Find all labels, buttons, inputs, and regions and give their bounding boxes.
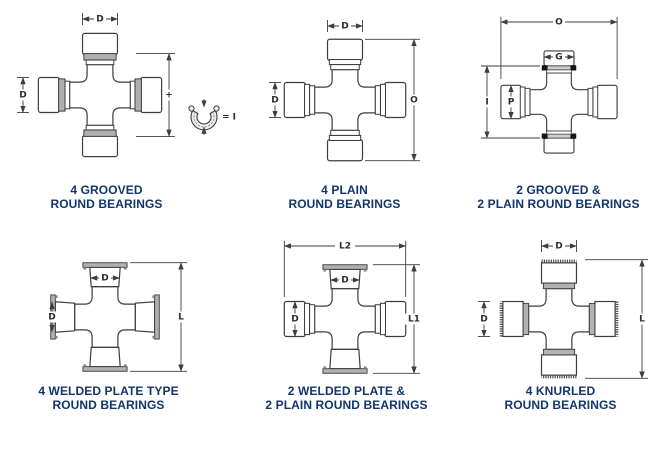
dim-label-length: L bbox=[639, 315, 645, 325]
caption-line-1: 2 GROOVED & bbox=[447, 184, 670, 198]
dim-label-left: D bbox=[48, 313, 55, 323]
ujoint-cross-plain bbox=[284, 39, 405, 160]
caption-line-2: ROUND BEARINGS bbox=[233, 198, 456, 212]
caption-line-2: ROUND BEARINGS bbox=[449, 399, 670, 413]
caption-line-1: 2 WELDED PLATE & bbox=[235, 385, 458, 399]
snap-ring-icon bbox=[189, 99, 219, 135]
cell-4-grooved: D D + = I 4 GROOVED ROUND BEARING bbox=[0, 0, 258, 225]
dim-label-overall-width: L2 bbox=[339, 242, 351, 252]
dim-label-top: D bbox=[555, 242, 562, 252]
ujoint-bearing-types-sheet: D D + = I 4 GROOVED ROUND BEARING bbox=[0, 0, 670, 450]
diagram-2-grooved-2-plain: O G I P bbox=[447, 0, 670, 183]
caption-line-2: 2 PLAIN ROUND BEARINGS bbox=[447, 198, 670, 212]
ujoint-cross-knurled bbox=[502, 262, 617, 377]
dim-label-left: D bbox=[480, 315, 487, 325]
cell-2-grooved-2-plain: O G I P 2 GROOVED & 2 PLAIN ROUND BEARIN… bbox=[447, 0, 670, 225]
dim-label-overall-height: O bbox=[410, 96, 418, 106]
dim-label-cap-bore: P bbox=[508, 98, 515, 108]
dim-label-left: D bbox=[291, 315, 298, 325]
diagram-caption: 4 KNURLED ROUND BEARINGS bbox=[449, 385, 670, 412]
diagram-caption: 4 GROOVED ROUND BEARINGS bbox=[0, 184, 218, 211]
diagram-4-welded-plate: D D L bbox=[0, 225, 223, 383]
diagram-4-grooved: D D + = I bbox=[0, 0, 258, 183]
dim-label-plus: + bbox=[165, 91, 173, 101]
diagram-caption: 2 GROOVED & 2 PLAIN ROUND BEARINGS bbox=[447, 184, 670, 211]
dim-label-top: D bbox=[96, 15, 103, 25]
diagram-caption: 2 WELDED PLATE & 2 PLAIN ROUND BEARINGS bbox=[235, 385, 458, 412]
diagram-caption: 4 WELDED PLATE TYPE ROUND BEARINGS bbox=[0, 385, 220, 412]
caption-line-1: 4 KNURLED bbox=[449, 385, 670, 399]
dim-label-top: D bbox=[341, 22, 348, 32]
caption-line-2: ROUND BEARINGS bbox=[0, 198, 218, 212]
cell-2-welded-2-plain: L2 D D L1 2 WELDED PLATE & 2 PLAIN ROUND… bbox=[223, 225, 447, 450]
dim-label-overall-width: O bbox=[555, 18, 563, 28]
dim-label-left: D bbox=[271, 96, 278, 106]
dim-label-length: L bbox=[178, 313, 184, 323]
dim-label-left: D bbox=[19, 91, 26, 101]
caption-line-1: 4 PLAIN bbox=[233, 184, 456, 198]
dim-label-length: L1 bbox=[408, 315, 420, 325]
caption-line-1: 4 GROOVED bbox=[0, 184, 218, 198]
caption-line-2: ROUND BEARINGS bbox=[0, 399, 220, 413]
diagram-4-plain: D D O bbox=[223, 0, 447, 183]
diagram-4-knurled: D D L bbox=[447, 225, 670, 383]
dim-label-top: D bbox=[341, 276, 348, 286]
diagram-caption: 4 PLAIN ROUND BEARINGS bbox=[233, 184, 456, 211]
dim-label-cap-width: G bbox=[555, 53, 562, 63]
caption-line-1: 4 WELDED PLATE TYPE bbox=[0, 385, 220, 399]
dim-label-top: D bbox=[101, 274, 108, 284]
ujoint-cross-grooved bbox=[38, 33, 161, 156]
diagram-2-welded-2-plain: L2 D D L1 bbox=[223, 225, 447, 383]
cell-4-knurled: D D L 4 KNURLED ROUND BEARINGS bbox=[447, 225, 670, 450]
cell-4-plain: D D O 4 PLAIN ROUND BEARINGS bbox=[223, 0, 447, 225]
dim-label-inside-height: I bbox=[485, 98, 488, 108]
caption-line-2: 2 PLAIN ROUND BEARINGS bbox=[235, 399, 458, 413]
cell-4-welded-plate: D D L 4 WELDED PLATE TYPE ROUND BEARINGS bbox=[0, 225, 223, 450]
